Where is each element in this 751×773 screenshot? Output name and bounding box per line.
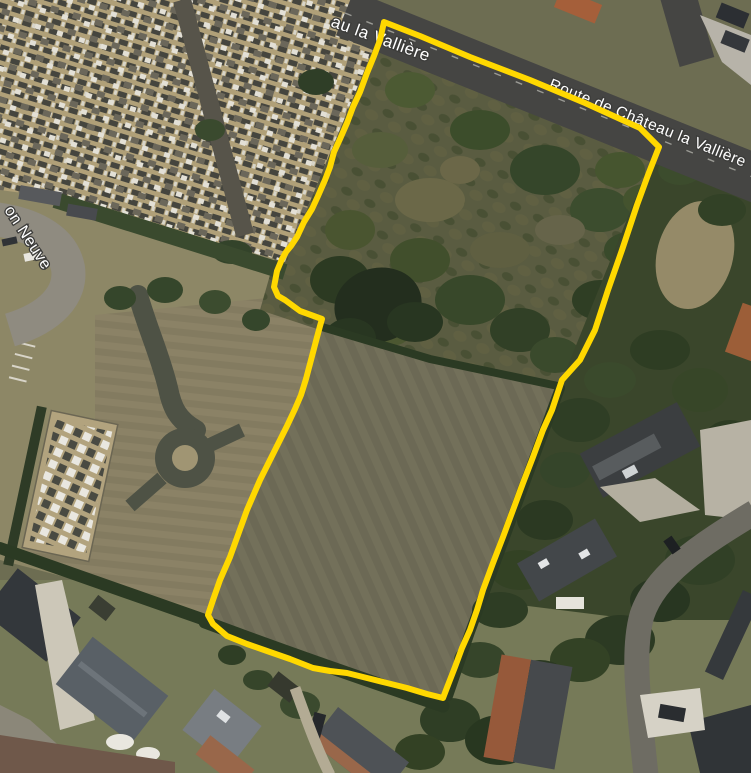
satellite-map[interactable]: au la Vallière Route de Château la Valli… xyxy=(0,0,751,773)
white-shed xyxy=(556,597,584,609)
map-render: au la Vallière Route de Château la Valli… xyxy=(0,0,751,773)
